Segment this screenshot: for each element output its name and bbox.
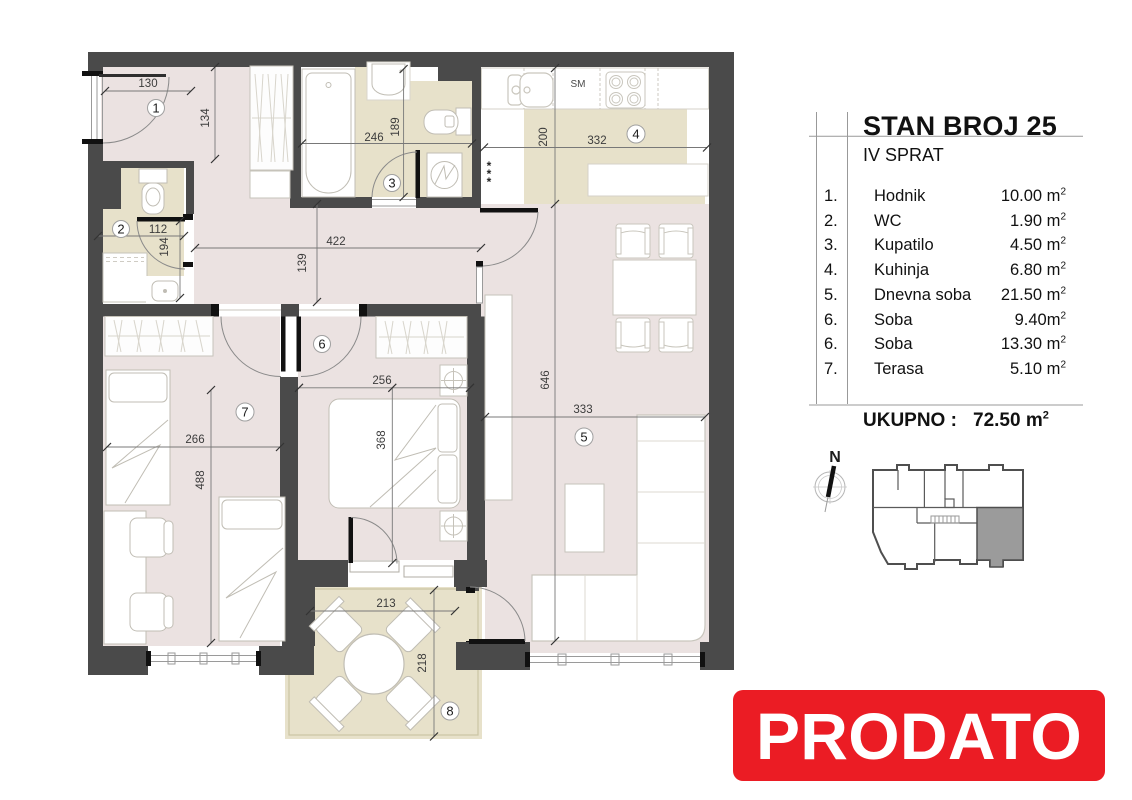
- svg-text:646: 646: [540, 370, 552, 389]
- svg-text:246: 246: [364, 132, 383, 144]
- svg-text:*: *: [487, 175, 492, 189]
- svg-text:213: 213: [376, 598, 395, 610]
- svg-text:333: 333: [573, 404, 592, 416]
- svg-text:112: 112: [149, 224, 167, 236]
- svg-text:SM: SM: [571, 79, 586, 90]
- svg-text:1: 1: [152, 101, 159, 116]
- svg-text:139: 139: [297, 253, 309, 272]
- svg-text:6: 6: [318, 337, 325, 352]
- svg-text:200: 200: [538, 127, 550, 146]
- svg-text:130: 130: [138, 78, 157, 90]
- svg-text:422: 422: [326, 236, 345, 248]
- svg-text:256: 256: [372, 375, 391, 387]
- svg-text:194: 194: [159, 237, 171, 257]
- svg-text:N: N: [829, 449, 841, 466]
- svg-text:332: 332: [587, 135, 606, 147]
- svg-text:2: 2: [117, 222, 124, 237]
- svg-text:4: 4: [632, 127, 639, 142]
- svg-text:368: 368: [376, 430, 388, 449]
- svg-text:3: 3: [388, 176, 395, 191]
- svg-text:189: 189: [390, 117, 402, 136]
- svg-text:134: 134: [200, 108, 212, 128]
- svg-text:7: 7: [241, 405, 248, 420]
- svg-text:488: 488: [195, 470, 207, 489]
- svg-text:266: 266: [185, 434, 204, 446]
- svg-text:5: 5: [580, 430, 587, 445]
- svg-text:8: 8: [446, 704, 453, 719]
- svg-text:218: 218: [417, 653, 429, 672]
